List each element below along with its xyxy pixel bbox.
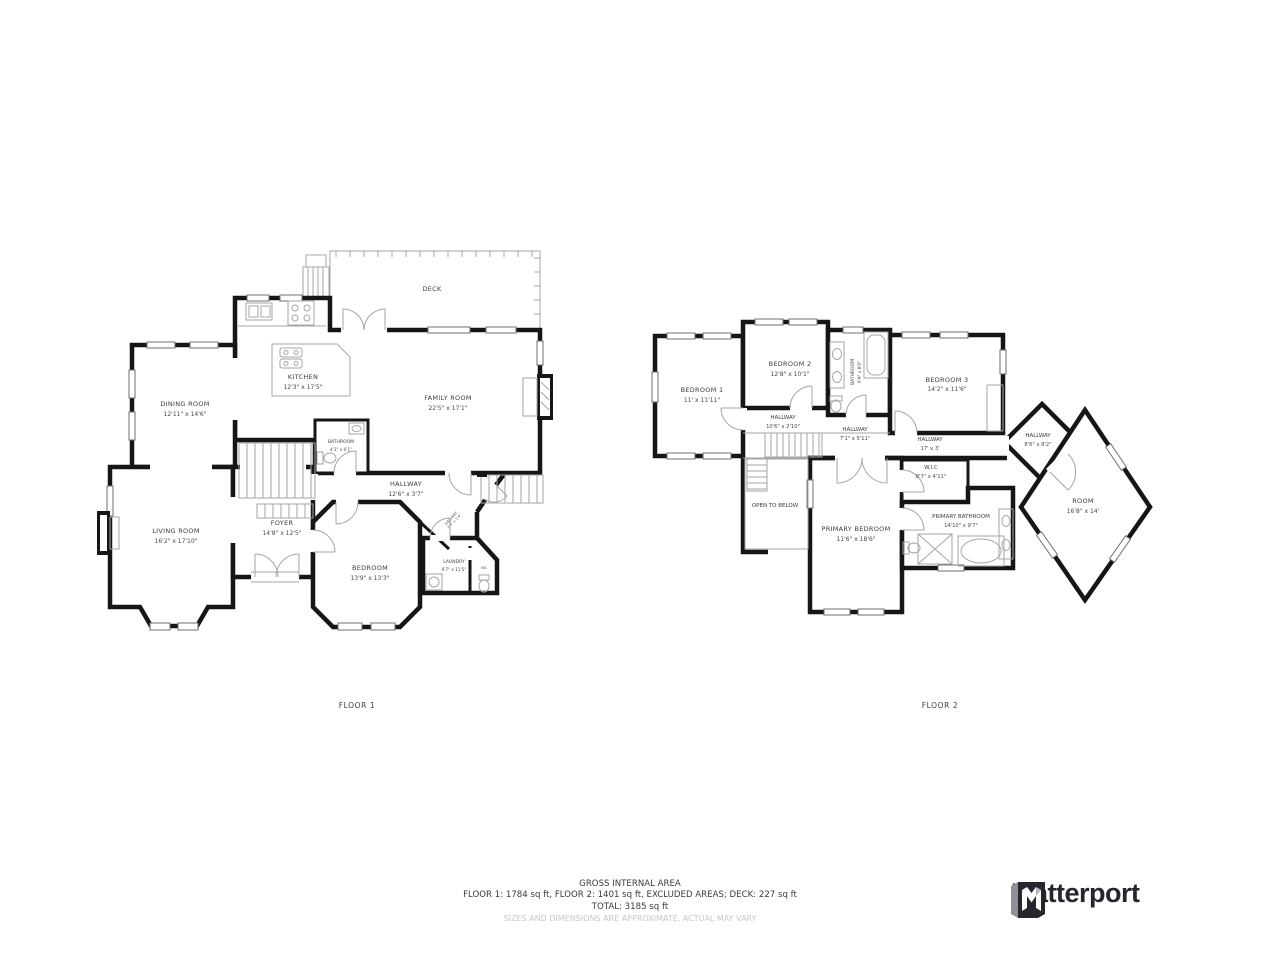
floor2-caption: FLOOR 2 [922, 701, 959, 710]
primary-bedroom-walls [810, 458, 902, 612]
living-room-dims: 16'2" x 17'10" [155, 538, 198, 545]
matterport-m-icon [1011, 878, 1047, 920]
total-area-line: TOTAL: 3185 sq ft [330, 902, 930, 913]
living-room-walls [110, 467, 233, 626]
kitchen-label: KITCHEN [288, 373, 318, 381]
open-to-below-label: OPEN TO BELOW [752, 503, 799, 509]
disclaimer-line: SIZES AND DIMENSIONS ARE APPROXIMATE, AC… [330, 913, 930, 924]
deck-stairs [303, 267, 329, 297]
bonus-room-label: ROOM [1072, 497, 1094, 505]
bathroom2-dims: 6'9" x 8'6" [857, 361, 862, 383]
deck-label: DECK [422, 285, 442, 293]
exterior-stairs [477, 471, 543, 503]
floor1-caption: FLOOR 1 [339, 701, 376, 710]
floorplan-canvas: DECK KITCHEN 12'3" x 17'5" DINING ROOM 1… [0, 0, 1280, 960]
bedroom2-dims: 12'8" x 10'1" [770, 371, 809, 378]
bonus-room-dims: 16'8" x 14' [1067, 508, 1100, 515]
primary-bathroom-dims: 14'10" x 9'7" [944, 523, 978, 529]
primary-bedroom-dims: 11'6" x 18'6" [836, 536, 875, 543]
foyer-label: FOYER [271, 519, 294, 527]
dining-room-label: DINING ROOM [160, 400, 209, 408]
floor-areas-line: FLOOR 1: 1784 sq ft, FLOOR 2: 1401 sq ft… [330, 890, 930, 901]
wic-label: W.I.C [924, 465, 938, 471]
bedroom2-label: BEDROOM 2 [769, 360, 812, 368]
hallway1-dims: 12'6" x 3'7" [388, 491, 424, 498]
hallway1-label: HALLWAY [390, 480, 422, 488]
matterport-logo: Matterport [1011, 878, 1140, 909]
living-room-label: LIVING ROOM [152, 527, 200, 535]
floorplan-page: DECK KITCHEN 12'3" x 17'5" DINING ROOM 1… [0, 0, 1280, 960]
bathroom1-label: BATHROOM [328, 439, 354, 445]
bedroom-dims: 13'9" x 13'3" [350, 575, 389, 582]
bedroom1-dims: 11' x 11'11" [684, 397, 721, 404]
bedroom1-walls [655, 336, 743, 456]
primary-bedroom-label: PRIMARY BEDROOM [822, 525, 891, 533]
primary-bathroom-label: PRIMARY BATHROOM [932, 514, 990, 520]
wic-dims: 8'7" x 4'11" [916, 474, 947, 480]
bathroom1-dims: 4'3" x 6'1" [330, 447, 352, 452]
hallway-a-dims: 10'6" x 2'10" [766, 424, 800, 430]
laundry-label: LAUNDRY [443, 559, 465, 565]
hallway-d-dims: 8'6" x 8'2" [1024, 442, 1051, 448]
bedroom3-label: BEDROOM 3 [926, 376, 969, 384]
hallway-d-label: HALLWAY [1025, 433, 1051, 439]
kitchen-dims: 12'3" x 17'5" [283, 384, 322, 391]
wc-label: WC [481, 566, 488, 570]
floor2-plan: BEDROOM 1 11' x 11'11" BEDROOM 2 12'8" x… [652, 319, 1150, 710]
family-room-label: FAMILY ROOM [424, 394, 472, 402]
bedroom-label: BEDROOM [352, 564, 388, 572]
floor1-plan: DECK KITCHEN 12'3" x 17'5" DINING ROOM 1… [97, 251, 553, 710]
foyer-dims: 14'8" x 12'5" [262, 530, 301, 537]
gross-area-title: GROSS INTERNAL AREA [330, 879, 930, 890]
bedroom1-label: BEDROOM 1 [681, 386, 724, 394]
laundry-dims: 6'7" x 11'5" [442, 567, 467, 572]
hallway-c-label: HALLWAY [917, 437, 943, 443]
hallway-b-dims: 7'1" x 5'11" [840, 436, 871, 442]
area-summary: GROSS INTERNAL AREA FLOOR 1: 1784 sq ft,… [330, 879, 930, 925]
dining-room-dims: 12'11" x 14'6" [164, 411, 207, 418]
hallway-b-label: HALLWAY [842, 427, 868, 433]
hallway-a-label: HALLWAY [770, 415, 796, 421]
bedroom3-dims: 14'2" x 11'6" [927, 386, 966, 393]
bedroom3-walls [890, 335, 1003, 433]
family-room-dims: 22'5" x 17'1" [428, 405, 467, 412]
bathroom2-label: BATHROOM [850, 359, 856, 385]
hallway-c-dims: 17' x 3' [920, 446, 939, 452]
